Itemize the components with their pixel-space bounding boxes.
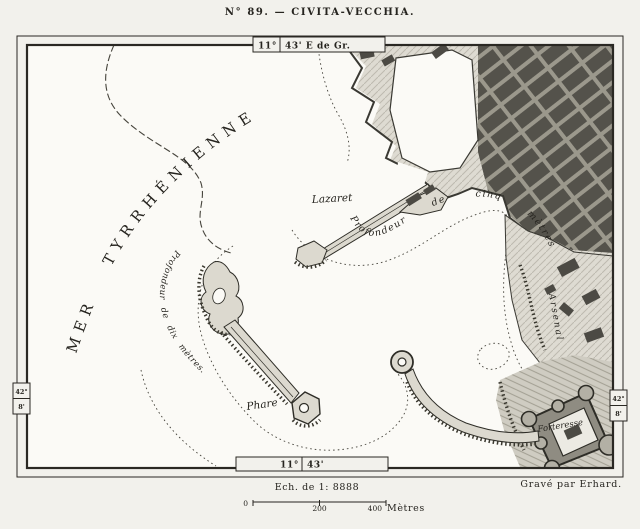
scale-tick-end: 400	[368, 504, 383, 513]
bottom-longitude-box: 11° 43'	[236, 457, 388, 471]
map-canvas: N° 89. — CIVITA-VECCHIA.	[0, 0, 640, 529]
scale-label: Ech. de 1: 8888	[275, 482, 360, 493]
map-sheet: N° 89. — CIVITA-VECCHIA.	[0, 0, 640, 529]
scale-bar: Ech. de 1: 8888 0 200 400 Mètres	[243, 482, 425, 514]
top-longitude-deg: 11°	[258, 42, 277, 52]
right-latitude-deg: 42°	[612, 395, 624, 403]
sheet-title: N° 89. — CIVITA-VECCHIA.	[225, 7, 415, 18]
left-latitude-min: 8'	[18, 403, 25, 411]
left-latitude-deg: 42°	[15, 388, 27, 396]
scale-unit: Mètres	[387, 503, 425, 514]
bottom-longitude-min: 43'	[307, 461, 324, 471]
scale-tick-mid: 200	[312, 504, 327, 513]
lighthouse-icon	[300, 404, 309, 413]
engraver-credit: Gravé par Erhard.	[520, 479, 622, 490]
left-latitude-box: 42° 8'	[13, 383, 30, 414]
right-latitude-min: 8'	[615, 410, 622, 418]
right-latitude-box: 42° 8'	[610, 390, 627, 421]
map-interior: MER TYRRHÉNIENNE Profondeur de cinq mètr…	[28, 40, 620, 476]
top-longitude-min: 43' E de Gr.	[285, 42, 351, 52]
lazaret-label: Lazaret	[311, 192, 354, 206]
scale-tick-0: 0	[243, 499, 248, 508]
bottom-longitude-deg: 11°	[280, 461, 299, 471]
inner-basin	[390, 50, 478, 172]
mole-tower-core	[398, 358, 406, 366]
top-longitude-box: 11° 43' E de Gr.	[253, 37, 385, 52]
